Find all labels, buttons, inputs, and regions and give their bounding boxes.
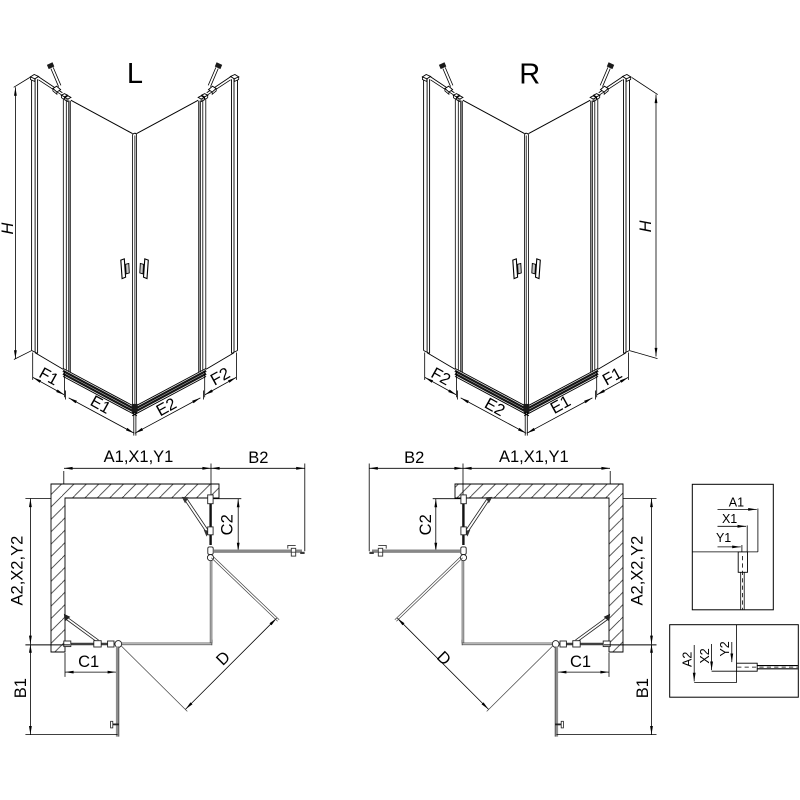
svg-text:R: R [519, 59, 540, 91]
svg-text:Y1: Y1 [716, 531, 731, 545]
svg-text:H: H [0, 222, 17, 234]
svg-text:C1: C1 [78, 653, 99, 671]
svg-text:B2: B2 [404, 449, 424, 467]
svg-text:A2,X2,Y2: A2,X2,Y2 [628, 536, 646, 606]
svg-text:A1,X1,Y1: A1,X1,Y1 [499, 448, 569, 466]
svg-text:C2: C2 [219, 514, 237, 535]
svg-text:D: D [213, 648, 234, 669]
svg-text:B1: B1 [12, 678, 30, 698]
svg-text:L: L [127, 58, 143, 90]
svg-text:A2: A2 [681, 652, 695, 667]
svg-text:F2: F2 [208, 364, 234, 389]
svg-text:B2: B2 [248, 449, 268, 467]
svg-text:E2: E2 [153, 395, 179, 421]
svg-text:F1: F1 [36, 364, 62, 389]
svg-text:F2: F2 [428, 364, 454, 389]
svg-text:X1: X1 [722, 512, 737, 526]
svg-text:A1: A1 [729, 496, 744, 510]
svg-text:B1: B1 [634, 678, 652, 698]
svg-text:A2,X2,Y2: A2,X2,Y2 [9, 536, 27, 606]
svg-text:F1: F1 [600, 364, 626, 389]
svg-text:A1,X1,Y1: A1,X1,Y1 [104, 448, 174, 466]
svg-text:X2: X2 [698, 648, 712, 663]
svg-text:E2: E2 [481, 395, 507, 421]
svg-text:C2: C2 [417, 514, 435, 535]
svg-text:C1: C1 [570, 653, 591, 671]
svg-text:H: H [637, 220, 655, 232]
svg-text:Y2: Y2 [718, 641, 732, 656]
svg-text:D: D [433, 648, 454, 669]
